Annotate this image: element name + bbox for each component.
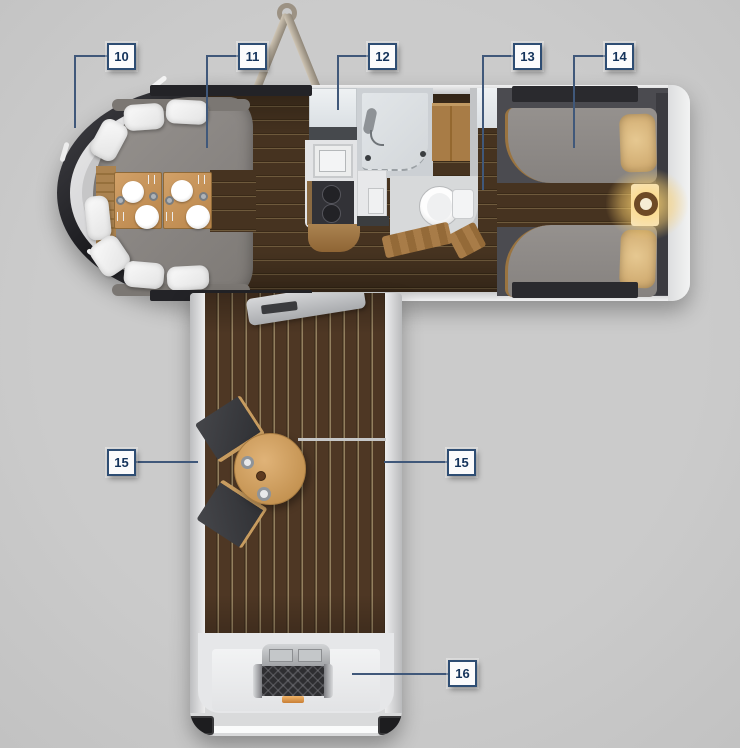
callout-16-number: 16	[455, 666, 469, 681]
deck-seam	[298, 438, 386, 441]
kitchen-overhead-cabinet	[309, 88, 357, 128]
cutlery-icon	[148, 175, 155, 184]
leader-line-15-right	[384, 461, 447, 463]
stern-foot	[190, 716, 214, 735]
callout-10: 10	[107, 43, 136, 70]
leader-line-10	[74, 55, 76, 128]
callout-12-number: 12	[375, 49, 389, 64]
leader-line-14	[573, 55, 607, 57]
deck	[190, 293, 402, 736]
grill-end-cap	[253, 664, 262, 698]
kitchen-wood-end	[308, 224, 360, 252]
hitch-right-bar	[283, 13, 321, 92]
leader-line-13	[482, 55, 484, 190]
grill-hood-window	[269, 649, 293, 662]
sofa-pillow	[166, 265, 209, 291]
callout-13-number: 13	[520, 49, 534, 64]
cutlery-icon	[166, 212, 173, 221]
plate	[186, 205, 210, 229]
stern-foot	[378, 716, 402, 735]
cooktop-burner	[322, 185, 341, 204]
cup	[149, 192, 158, 201]
sofa-pillow	[123, 103, 165, 132]
wardrobe	[432, 103, 472, 161]
table-cup	[257, 487, 271, 501]
leader-line-13	[482, 55, 515, 57]
cup	[116, 196, 125, 205]
callout-15-left-number: 15	[114, 455, 128, 470]
callout-13: 13	[513, 43, 542, 70]
callout-15-right-number: 15	[454, 455, 468, 470]
plate	[122, 181, 144, 203]
cooktop-burner	[322, 204, 341, 223]
deck-door-window	[261, 301, 298, 314]
cutlery-icon	[117, 212, 124, 221]
cup	[165, 196, 174, 205]
leader-line-15-left	[136, 461, 198, 463]
toilet-seat	[427, 193, 452, 221]
callout-16: 16	[448, 660, 477, 687]
microwave-window	[319, 150, 346, 172]
callout-14: 14	[605, 43, 634, 70]
callout-14-number: 14	[612, 49, 626, 64]
bedroom-window	[512, 86, 638, 102]
sofa-pillow	[84, 195, 112, 241]
stern-edge	[200, 726, 392, 733]
plate	[135, 205, 159, 229]
leader-line-11	[206, 55, 240, 57]
grill-hood	[262, 644, 330, 667]
leader-line-16	[352, 673, 448, 675]
sofa-pillow	[165, 99, 208, 125]
leader-line-12	[337, 55, 370, 57]
leader-line-11	[206, 55, 208, 148]
grill-body	[253, 666, 333, 696]
cup	[199, 192, 208, 201]
table-dish	[256, 471, 266, 481]
callout-11-number: 11	[246, 49, 260, 64]
lounge-window	[150, 85, 312, 96]
kitchen-counter-edge	[309, 127, 357, 141]
plate	[171, 180, 193, 202]
toilet-tank	[452, 189, 474, 219]
leader-line-12	[337, 55, 339, 110]
bath-cabinet-kick	[357, 216, 389, 226]
leader-line-10	[75, 55, 109, 57]
bath-cabinet-door	[368, 188, 384, 214]
shower-drain	[365, 155, 371, 161]
bed-pillow	[619, 113, 657, 172]
table-cup	[241, 456, 254, 469]
sofa-pillow	[123, 260, 165, 289]
callout-12: 12	[368, 43, 397, 70]
grill-hood-window	[298, 649, 322, 662]
shower-drain	[420, 151, 426, 157]
dinette-floor-opening	[210, 170, 256, 232]
floorplan-scene: 10 11 12 13 14 15 15 16	[0, 0, 740, 748]
leader-line-14	[573, 55, 575, 148]
bedroom-window	[512, 282, 638, 298]
cutlery-icon	[198, 175, 205, 184]
callout-15-right: 15	[447, 449, 476, 476]
grill-handle	[282, 696, 304, 703]
callout-10-number: 10	[114, 49, 128, 64]
callout-15-left: 15	[107, 449, 136, 476]
callout-11: 11	[238, 43, 267, 70]
lamp-icon	[634, 192, 658, 216]
grill-end-cap	[324, 664, 333, 698]
